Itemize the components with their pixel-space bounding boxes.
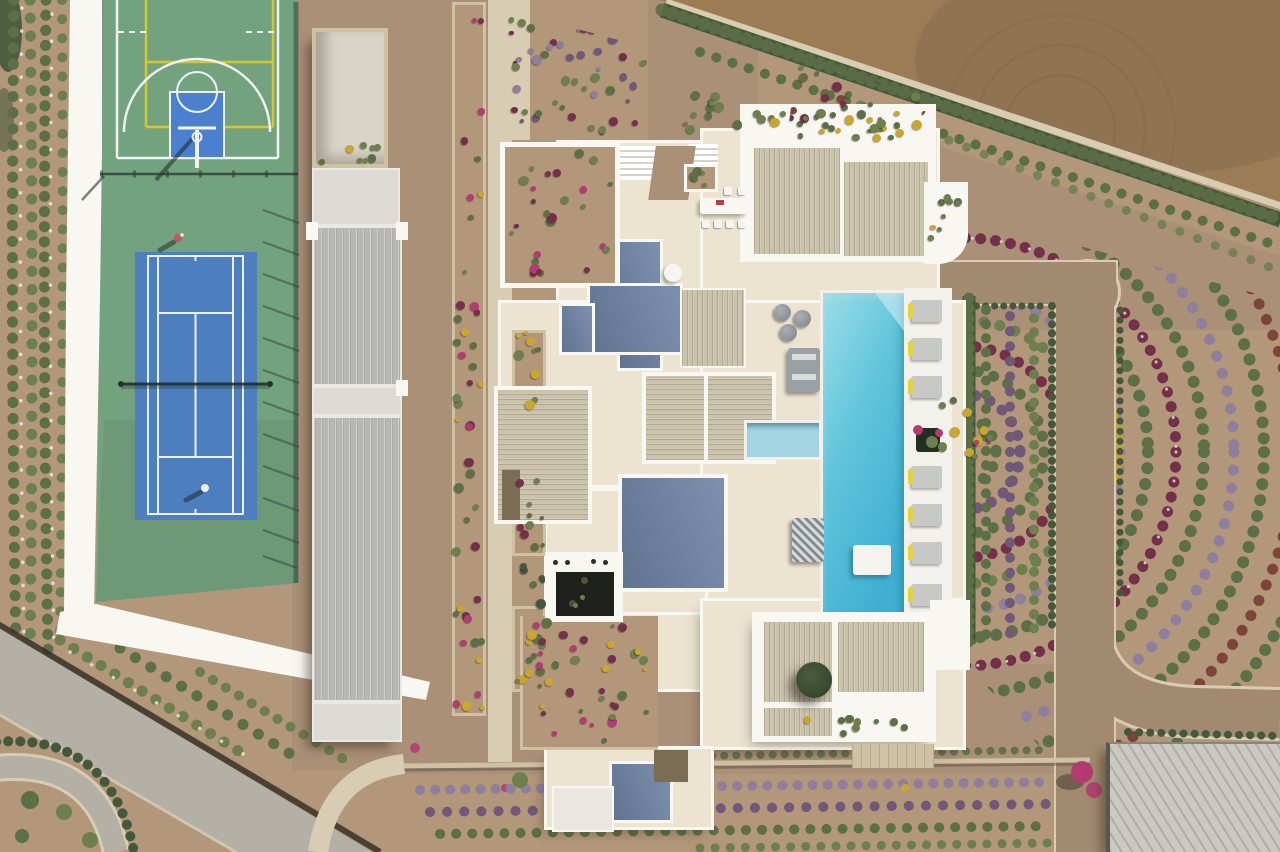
plant-dot <box>590 723 594 727</box>
annex-flashing <box>396 380 408 396</box>
pouf <box>794 310 811 327</box>
plant-dot <box>518 19 526 27</box>
slate-roof-cross-arm <box>562 306 592 352</box>
plant-dot <box>538 651 543 656</box>
plant-dot <box>577 51 585 59</box>
dining-chair <box>726 220 734 228</box>
plant-dot <box>935 429 943 437</box>
plant-dot <box>526 657 532 663</box>
plant-dot <box>852 724 860 732</box>
plant-dot <box>536 599 546 609</box>
plant-dot <box>857 110 866 119</box>
plant-dot <box>838 717 845 724</box>
plant-dot <box>516 57 522 63</box>
plant-dot <box>553 169 561 177</box>
plant-dot <box>467 194 474 201</box>
sun-lounger <box>912 338 942 360</box>
plant-dot <box>930 225 935 230</box>
plant-dot <box>873 134 881 142</box>
plant-dot <box>464 517 470 523</box>
plant-dot <box>602 665 610 673</box>
dark-slat-panel <box>654 750 688 782</box>
plant-dot <box>618 623 627 632</box>
plant-dot <box>803 116 808 121</box>
plant-dot <box>453 611 459 617</box>
plant-dot <box>458 352 465 359</box>
plant-dot <box>939 402 946 409</box>
plant-dot <box>536 347 541 352</box>
plant-dot <box>468 215 474 221</box>
roof-garden-north <box>750 110 930 142</box>
plant-dot <box>513 85 522 94</box>
pool-house-panel <box>838 622 924 692</box>
plant-dot <box>530 581 537 588</box>
roof-garden-curve <box>928 188 962 258</box>
dining-chair <box>738 187 746 195</box>
plant-dot <box>510 231 514 235</box>
plant-dot <box>534 478 540 484</box>
plant-dot <box>531 370 539 378</box>
pool-steps <box>875 293 907 335</box>
plant-dot <box>461 137 468 144</box>
annex-metal-roof-south <box>312 416 402 702</box>
east-block <box>930 600 970 670</box>
aerial-photo-villa-estate <box>0 0 1280 852</box>
plant-dot <box>597 67 601 71</box>
plant-dot <box>520 119 525 124</box>
plant-dot <box>705 112 713 120</box>
plant-dot <box>511 107 517 113</box>
pergola-panel <box>844 162 928 256</box>
plant-dot <box>566 54 574 62</box>
plant-dot <box>560 105 565 110</box>
plant-dot <box>608 182 613 187</box>
plant-dot <box>686 125 695 134</box>
plant-dot <box>456 301 465 310</box>
plant-dot <box>512 63 520 71</box>
plant-dot <box>360 142 367 149</box>
courtyard-plants <box>506 148 614 280</box>
plant-dot <box>346 145 354 153</box>
plant-dot <box>532 55 542 65</box>
plant-dot <box>467 380 473 386</box>
plant-dot <box>527 630 537 640</box>
plant-dot <box>938 442 947 451</box>
plant-dot <box>475 691 482 698</box>
plant-dot <box>584 267 590 273</box>
plant-dot <box>541 51 548 58</box>
plant-dot <box>319 159 325 165</box>
plant-dot <box>526 337 534 345</box>
plant-dot <box>469 363 477 371</box>
plant-dot <box>594 48 602 56</box>
plant-dot <box>541 711 546 716</box>
plant-dot <box>602 738 606 742</box>
dining-chair <box>738 220 746 228</box>
plant-dot <box>814 114 820 120</box>
sofa <box>788 348 820 392</box>
plant-dot <box>714 102 724 112</box>
plant-dot <box>453 394 461 402</box>
plant-dot <box>461 328 469 336</box>
pouf <box>780 324 797 341</box>
plant-dot <box>357 158 363 164</box>
plant-dot <box>640 60 646 66</box>
kids-pool <box>744 420 822 460</box>
plant-dot <box>368 154 376 162</box>
plant-dot <box>460 640 467 647</box>
plant-dot <box>455 417 460 422</box>
plant-dot <box>912 120 922 130</box>
plant-dot <box>522 109 528 115</box>
pergola-southeast <box>1106 742 1280 852</box>
plant-dot <box>804 716 812 724</box>
plant-dot <box>643 667 647 671</box>
plant-dot <box>464 615 473 624</box>
plant-dot <box>867 117 873 123</box>
plant-dot <box>476 657 482 663</box>
plant-dot <box>562 76 570 84</box>
annex-flashing <box>396 222 408 240</box>
plant-dot <box>552 731 557 736</box>
plant-dot <box>798 133 804 139</box>
plant-dot <box>531 199 536 204</box>
annex-cap-middle <box>312 386 402 416</box>
plant-dot <box>527 24 535 32</box>
plant-dot <box>454 483 464 493</box>
plant-dot <box>480 706 484 710</box>
plant-dot <box>545 171 551 177</box>
plant-dot <box>452 547 461 556</box>
round-table <box>664 264 682 282</box>
plant-dot <box>588 125 594 131</box>
plant-dot <box>896 129 904 137</box>
plant-dot <box>531 186 536 191</box>
plant-dot <box>780 111 786 117</box>
plant-dot <box>701 171 705 175</box>
tennis-court <box>118 233 273 520</box>
plant-dot <box>520 530 529 539</box>
annex-cap-north <box>312 168 400 226</box>
plant-dot <box>516 333 521 338</box>
plant-dot <box>635 648 641 654</box>
plant-dot <box>928 235 933 240</box>
plant-dot <box>462 701 471 710</box>
plant-dot <box>478 108 484 114</box>
plant-dot <box>815 71 820 76</box>
sunken-courtyard-plants <box>558 574 612 612</box>
plant-dot <box>963 408 972 417</box>
plant-dot <box>534 251 541 258</box>
plant-dot <box>527 513 532 518</box>
courtyard-tree <box>796 662 832 698</box>
tennis-player-bottom <box>201 484 209 492</box>
plant-dot <box>516 479 524 487</box>
plant-dot <box>980 426 989 435</box>
plant-dot <box>868 102 873 107</box>
plant-dot <box>572 78 579 85</box>
plant-dot <box>591 73 600 82</box>
plant-dot <box>901 724 908 731</box>
plant-dot <box>526 521 534 529</box>
plant-dot <box>683 122 687 126</box>
plant-dot <box>836 128 841 133</box>
plant-dot <box>609 714 616 721</box>
plant-dot <box>542 618 552 628</box>
plant-dot <box>845 91 852 98</box>
plant-dot <box>570 645 577 652</box>
plant-dot <box>509 17 515 23</box>
plant-dot <box>374 144 381 151</box>
plant-dot <box>608 655 615 662</box>
plant-dot <box>581 577 588 584</box>
plant-dot <box>603 246 610 253</box>
plant-dot <box>541 543 545 547</box>
planter-strip-plants <box>452 2 486 716</box>
plant-dot <box>691 112 697 118</box>
plant-dot <box>692 176 698 182</box>
plant-dot <box>888 135 893 140</box>
plant-dot <box>974 440 978 444</box>
slate-roof-large <box>622 478 724 588</box>
plant-dot <box>539 575 545 581</box>
plant-dot <box>770 118 779 127</box>
roof-garden-east <box>934 394 996 464</box>
plant-dot <box>972 454 977 459</box>
plant-dot <box>845 715 854 724</box>
plant-dot <box>845 115 854 124</box>
plant-dot <box>691 91 700 100</box>
plant-dot <box>453 339 461 347</box>
plant-dot <box>466 469 475 478</box>
plant-dot <box>799 65 804 70</box>
dining-chair <box>714 220 722 228</box>
plant-dot <box>599 126 607 134</box>
planter-box-plants <box>512 330 546 416</box>
annex-flashing <box>306 222 318 240</box>
plant-dot <box>894 111 900 117</box>
plant-dot <box>453 700 460 707</box>
plant-dot <box>524 331 528 335</box>
plant-dot <box>478 18 484 24</box>
sofa-patterned <box>792 518 824 562</box>
plant-dot <box>454 315 462 323</box>
plant-dot <box>911 93 920 102</box>
plant-dot <box>527 502 532 507</box>
sports-courts <box>82 0 299 602</box>
plant-dot <box>950 427 960 437</box>
plant-dot <box>580 636 588 644</box>
annex-building <box>312 28 402 742</box>
plant-dot <box>937 227 942 232</box>
plant-dot <box>590 156 598 164</box>
plant-dot <box>575 149 584 158</box>
sun-lounger <box>912 542 942 564</box>
plant-dot <box>552 661 559 668</box>
bougainvillea <box>1071 761 1093 783</box>
in-pool-daybed <box>853 545 891 575</box>
plant-dot <box>599 688 605 694</box>
plant-dot <box>640 656 648 664</box>
plant-dot <box>702 183 706 187</box>
plant-dot <box>471 638 480 647</box>
plant-dot <box>573 603 578 608</box>
plant-dot <box>547 44 553 50</box>
plant-dot <box>536 662 543 669</box>
plant-dot <box>799 73 808 82</box>
plant-dot <box>870 124 878 132</box>
plant-dot <box>472 18 477 23</box>
plant-dot <box>540 516 544 520</box>
plant-dot <box>528 48 534 54</box>
plant-dot <box>470 342 477 349</box>
plant-dot <box>606 86 615 95</box>
plant-dot <box>709 101 713 105</box>
plant-dot <box>955 201 961 207</box>
plant-dot <box>890 718 898 726</box>
plant-dot <box>582 86 587 91</box>
plant-dot <box>539 638 546 645</box>
plant-dot <box>545 678 553 686</box>
plant-dot <box>530 166 534 170</box>
plant-dot <box>568 113 576 121</box>
plant-dot <box>821 94 828 101</box>
plant-dot <box>599 696 605 702</box>
plant-dot <box>473 504 479 510</box>
plant-dot <box>941 214 946 219</box>
plant-dot <box>950 397 957 404</box>
dining-chair <box>724 187 732 195</box>
plant-dot <box>559 631 568 640</box>
plant-dot <box>607 641 615 649</box>
plant-dot <box>579 709 583 713</box>
slate-roof-cross-horizontal <box>590 286 680 352</box>
plant-dot <box>852 134 860 142</box>
plant-dot <box>630 82 637 89</box>
plant-dot <box>463 270 467 274</box>
entry-planter-dots <box>686 166 716 190</box>
plant-dot <box>733 120 742 129</box>
sun-lounger <box>912 466 942 488</box>
plant-dot <box>525 400 535 410</box>
plant-dot <box>832 82 842 92</box>
plant-dot <box>519 176 528 185</box>
plant-dot <box>840 730 848 738</box>
plant-dot <box>464 458 473 467</box>
white-panel-south <box>552 786 614 832</box>
plant-dot <box>475 156 481 162</box>
pouf <box>774 304 791 321</box>
plant-dot <box>987 435 993 441</box>
plant-dot <box>553 100 558 105</box>
plant-dot <box>619 53 627 61</box>
plant-dot <box>620 73 627 80</box>
entry-tree-bed <box>682 90 744 144</box>
plant-dot <box>580 717 587 724</box>
annex-metal-roof-north <box>312 226 402 386</box>
plant-dot <box>566 688 574 696</box>
pergola-roof-a <box>680 288 746 368</box>
plant-dot <box>515 679 519 683</box>
swimming-pool <box>820 290 910 620</box>
plant-dot <box>478 191 484 197</box>
pool-house-plants <box>800 714 908 738</box>
plant-dot <box>874 719 879 724</box>
plant-dot <box>611 624 615 628</box>
plant-dot <box>520 563 527 570</box>
plant-dot <box>581 204 586 209</box>
plant-dot <box>557 41 565 49</box>
plant-dot <box>757 115 767 125</box>
plant-dot <box>644 710 648 714</box>
plant-dot <box>571 656 579 664</box>
plant-dot <box>609 117 618 126</box>
plant-dot <box>618 691 627 700</box>
plant-dot <box>474 596 480 602</box>
plant-dot <box>363 158 368 163</box>
plant-dot <box>533 622 540 629</box>
sun-lounger <box>912 300 942 322</box>
sun-lounger <box>912 504 942 526</box>
plant-dot <box>580 186 586 192</box>
stone-patio <box>852 744 934 768</box>
dining-table <box>700 198 748 214</box>
plant-dot <box>610 702 615 707</box>
plant-dot <box>540 704 545 709</box>
plant-dot <box>471 542 480 551</box>
shrub-garden-dots <box>522 618 656 746</box>
plant-dot <box>819 129 825 135</box>
annex-deck-planter <box>316 142 382 166</box>
plant-dot <box>591 91 599 99</box>
plant-dot <box>509 31 513 35</box>
plant-dot <box>535 110 542 117</box>
plant-dot <box>561 196 569 204</box>
plant-dot <box>514 350 523 359</box>
plant-dot <box>514 224 519 229</box>
porthole-planter <box>518 542 546 612</box>
plant-dot <box>626 99 630 103</box>
pergola-panel <box>754 148 840 254</box>
plant-dot <box>632 120 638 126</box>
dining-chair <box>702 220 710 228</box>
plant-dot <box>580 595 586 601</box>
plant-dot <box>478 381 485 388</box>
annex-cap-south <box>312 702 402 742</box>
